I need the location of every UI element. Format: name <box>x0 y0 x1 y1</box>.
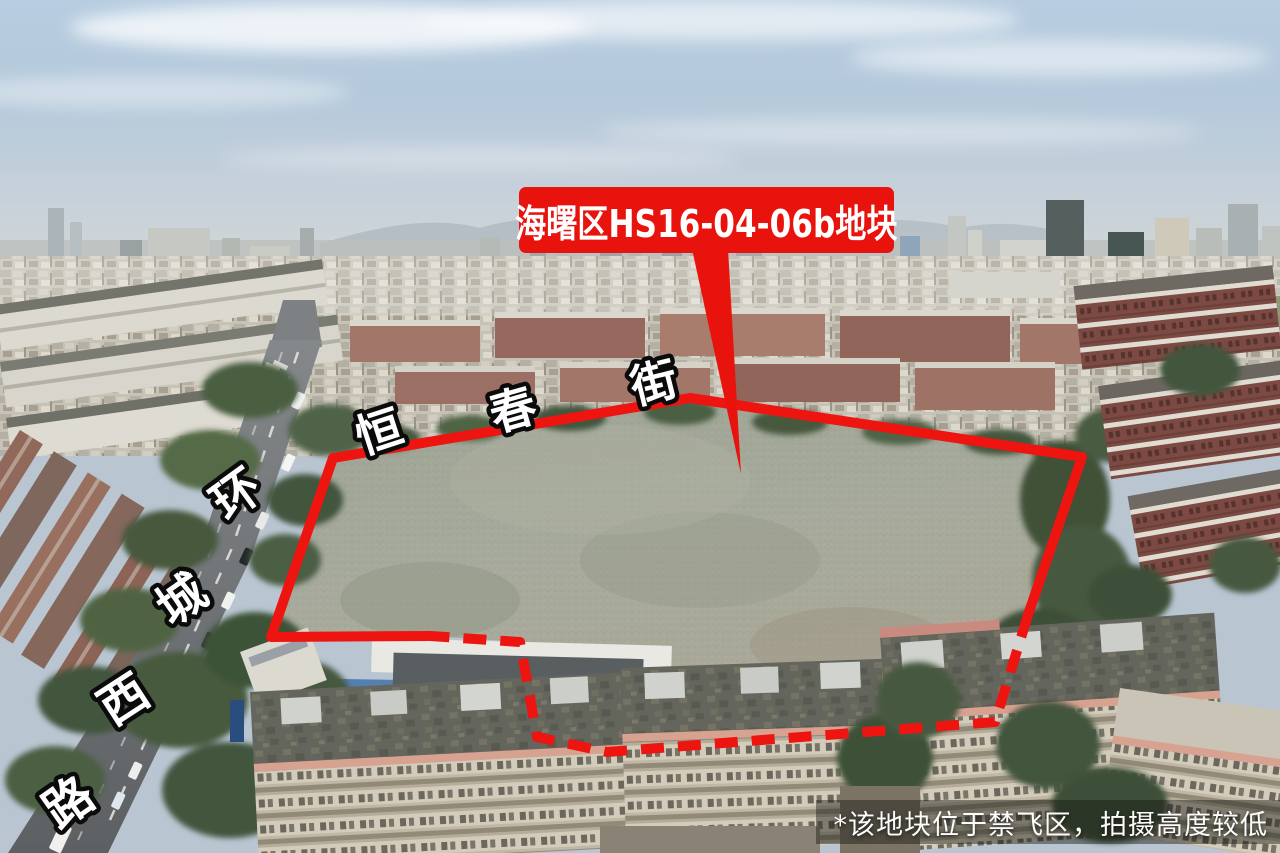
apartment-slab-left <box>250 672 649 853</box>
plot-label-text: 海曙区HS16-04-06b地块 <box>515 193 898 248</box>
no-fly-zone-note: *该地块位于禁飞区，拍摄高度较低 <box>816 800 1280 844</box>
note-text: *该地块位于禁飞区，拍摄高度较低 <box>834 803 1269 842</box>
aerial-photo-scene: 恒 春 街 环 城 西 路 海曙区HS16-04-06b地块 *该地块位于禁飞区… <box>0 0 1280 853</box>
blue-signboard <box>230 700 244 742</box>
aerial-photo-canvas: 恒 春 街 环 城 西 路 <box>0 0 1280 853</box>
plot-callout-label: 海曙区HS16-04-06b地块 <box>519 187 894 253</box>
